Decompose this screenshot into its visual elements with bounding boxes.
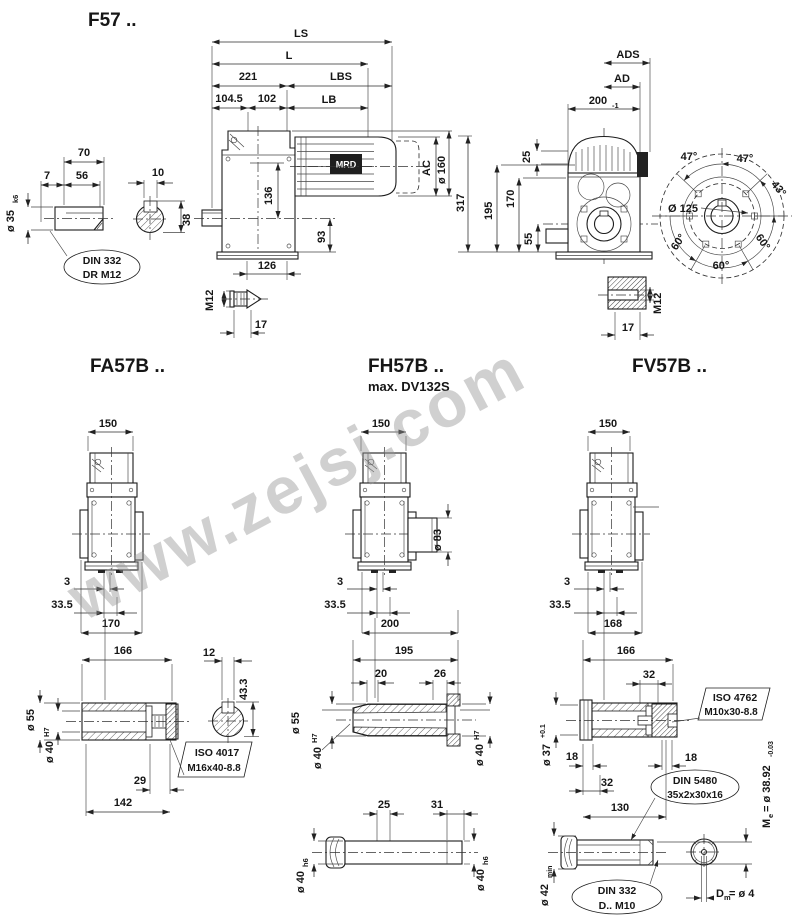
fa-dim-3: 3 xyxy=(64,576,70,588)
dim-195: 195 xyxy=(483,202,495,220)
fh-dim-20: 20 xyxy=(375,668,387,680)
fa-iso-callout-line1: ISO 4017 xyxy=(195,747,240,759)
fa-dim-170: 170 xyxy=(102,618,120,630)
dim-AC: AC xyxy=(421,160,433,176)
fv-dim-dia42: ø 42 xyxy=(539,884,551,906)
fh57b-shaft-section: 195 20 26 ø 55 ø 40 H7 ø 40 H7 25 31 xyxy=(290,640,490,842)
dim-70: 70 xyxy=(78,147,90,159)
fv-dim-dia42-suffix: min xyxy=(547,866,554,878)
dim-93: 93 xyxy=(316,231,328,243)
fv57b-title: FV57B .. xyxy=(632,356,707,377)
fh57b-subtitle: max. DV132S xyxy=(368,379,450,394)
fv57b-shaft-section: 166 32 ISO 4762 M10x30-8.8 ø 37 +0.1 18 … xyxy=(540,640,770,840)
fa-dim-150: 150 xyxy=(99,418,117,430)
dim-25: 25 xyxy=(521,151,533,163)
fv-dim-dia37: ø 37 xyxy=(541,744,553,766)
dim-104-5: 104.5 xyxy=(215,93,243,105)
fv-dim-me-value: = ø 38.92 xyxy=(761,765,773,812)
fh-dim-33-5: 33.5 xyxy=(324,599,345,611)
fv-dim-18-left: 18 xyxy=(566,751,578,763)
fa-dim-dia55: ø 55 xyxy=(25,709,37,731)
fv57b-spline-end-view: D m = ø 4 xyxy=(686,834,755,902)
din332-callout-line2: DR M12 xyxy=(83,269,122,281)
dim-102: 102 xyxy=(258,93,276,105)
fv-dim-me-prefix: M xyxy=(761,819,773,828)
fv-dim-166: 166 xyxy=(617,645,635,657)
dim-dia160: ø 160 xyxy=(436,156,448,184)
fh-dim-200: 200 xyxy=(381,618,399,630)
fa-dim-dia40-tol: H7 xyxy=(42,727,51,737)
dim-ADS: ADS xyxy=(616,49,639,61)
dim-AD: AD xyxy=(614,73,630,85)
technical-drawing-page: www.zejsj.com F57 .. 70 xyxy=(0,0,793,920)
dim-200: 200 xyxy=(589,95,607,107)
f57-key-section-detail: 10 38 xyxy=(128,167,193,240)
fa-dim-33-5: 33.5 xyxy=(51,599,72,611)
fv-dim-3: 3 xyxy=(564,576,570,588)
f57-side-view: LS L 221 LBS 104.5 102 LB MRD AC ø 160 3… xyxy=(194,28,490,280)
fa57b-bore-detail: 12 43.3 xyxy=(203,647,259,743)
fh-dim-dia40h6-left-tol: h6 xyxy=(301,858,310,867)
fh-dim-195: 195 xyxy=(395,645,413,657)
fv-dim-150: 150 xyxy=(599,418,617,430)
fh57b-view: 150 ø 83 200 3 33.5 xyxy=(324,418,458,698)
fv-dim-168: 168 xyxy=(604,618,622,630)
fv-dim-me-tol: -0.03 xyxy=(768,741,775,757)
fv-dim-dia37-tol: +0.1 xyxy=(540,724,547,738)
f57-shaft-detail: 70 7 56 ø 35 k6 DIN 332 DR M12 xyxy=(5,147,140,284)
dim-L: L xyxy=(286,50,293,62)
dim-10: 10 xyxy=(152,167,164,179)
fh57b-solid-shaft: ø 40 h6 ø 40 h6 xyxy=(295,828,490,893)
fh-dim-3: 3 xyxy=(337,576,343,588)
dim-7: 7 xyxy=(44,170,50,182)
fh-dim-dia40-right: ø 40 xyxy=(474,744,486,766)
dim-317: 317 xyxy=(455,194,467,212)
fv-iso-callout-line2: M10x30-8.8 xyxy=(704,707,758,718)
dim-200-tol: -1 xyxy=(612,101,619,110)
fa-dim-12: 12 xyxy=(203,647,215,659)
angle-60-left: 60° xyxy=(669,232,688,253)
fv-din332-line2: D.. M10 xyxy=(599,900,636,912)
fh57b-title: FH57B .. xyxy=(368,356,444,377)
angle-60-bottom: 60° xyxy=(713,260,730,272)
fv-dim-dm-value: = ø 4 xyxy=(729,888,755,900)
fh-dim-26: 26 xyxy=(434,668,446,680)
dim-126: 126 xyxy=(258,260,276,272)
dim-dia35: ø 35 xyxy=(5,210,17,232)
drawing-canvas: F57 .. 70 7 56 ø 35 k6 DIN 332 DR M12 10… xyxy=(0,0,793,920)
dim-56: 56 xyxy=(76,170,88,182)
fa-dim-29: 29 xyxy=(134,775,146,787)
fv-din5480-line1: DIN 5480 xyxy=(673,775,718,787)
dim-17-left: 17 xyxy=(255,319,267,331)
dim-38: 38 xyxy=(181,214,193,226)
fa57b-view: 150 170 3 33.5 xyxy=(51,418,150,700)
fa-iso-callout-line2: M16x40-8.8 xyxy=(187,763,241,774)
dim-136: 136 xyxy=(263,187,275,205)
dim-LS: LS xyxy=(294,28,308,40)
f57-title: F57 .. xyxy=(88,10,137,31)
f57-bolt-detail-left: M12 17 xyxy=(204,290,268,338)
fa-dim-142: 142 xyxy=(114,797,132,809)
fh-dim-dia55: ø 55 xyxy=(290,712,302,734)
fh-dim-dia40h6-right: ø 40 xyxy=(475,869,487,891)
f57-bolt-detail-right: M12 17 xyxy=(598,277,664,340)
motor-plate-label: MRD xyxy=(336,160,357,170)
fv-dim-18-right: 18 xyxy=(685,752,697,764)
angle-47-left: 47° xyxy=(681,151,698,163)
fv-dim-33-5: 33.5 xyxy=(549,599,570,611)
fa-dim-dia40: ø 40 xyxy=(44,741,56,763)
dim-LBS: LBS xyxy=(330,71,352,83)
fh-dim-dia40-left: ø 40 xyxy=(312,747,324,769)
din332-callout-line1: DIN 332 xyxy=(83,255,122,267)
fa-dim-43-3: 43.3 xyxy=(238,679,250,700)
fv57b-view: 150 168 3 33.5 xyxy=(549,418,659,700)
fv-iso-callout-line1: ISO 4762 xyxy=(713,692,758,704)
dim-170: 170 xyxy=(505,190,517,208)
fh-dim-dia40h6-left: ø 40 xyxy=(295,871,307,893)
fh-dim-dia40-right-tol: H7 xyxy=(472,730,481,740)
dim-221: 221 xyxy=(239,71,257,83)
fh-dim-dia83: ø 83 xyxy=(432,529,444,551)
fv-din5480-line2: 35x2x30x16 xyxy=(667,790,723,801)
dim-dia125: Ø 125 xyxy=(668,203,698,215)
fv-din332-line1: DIN 332 xyxy=(598,885,637,897)
fa-dim-166: 166 xyxy=(114,645,132,657)
dim-55: 55 xyxy=(523,233,535,245)
fv-dim-32-bottom: 32 xyxy=(601,777,613,789)
fv-dim-me-sub: e xyxy=(766,814,775,818)
fh-dim-31: 31 xyxy=(431,799,443,811)
fv-dim-dm-prefix: D xyxy=(716,888,724,900)
fv-dim-32-top: 32 xyxy=(643,669,655,681)
dim-M12-right: M12 xyxy=(652,293,664,314)
dim-LB: LB xyxy=(322,94,337,106)
dim-17-right: 17 xyxy=(622,322,634,334)
fv-dim-130: 130 xyxy=(611,802,629,814)
fh-dim-150: 150 xyxy=(372,418,390,430)
f57-rear-view: ADS AD 200 -1 25 195 170 55 xyxy=(483,49,658,265)
angle-43: 43° xyxy=(768,179,788,199)
fh-dim-dia40-left-tol: H7 xyxy=(310,733,319,743)
fh-dim-dia40h6-right-tol: h6 xyxy=(481,856,490,865)
angle-47-right: 47° xyxy=(737,153,754,165)
dim-dia35-tol: k6 xyxy=(11,195,20,203)
f57-flange-detail: 47° 47° 43° Ø 125 60° 60° 60° xyxy=(652,148,792,285)
fa57b-title: FA57B .. xyxy=(90,356,165,377)
dim-M12-left: M12 xyxy=(204,290,216,311)
fh-dim-25: 25 xyxy=(378,799,390,811)
